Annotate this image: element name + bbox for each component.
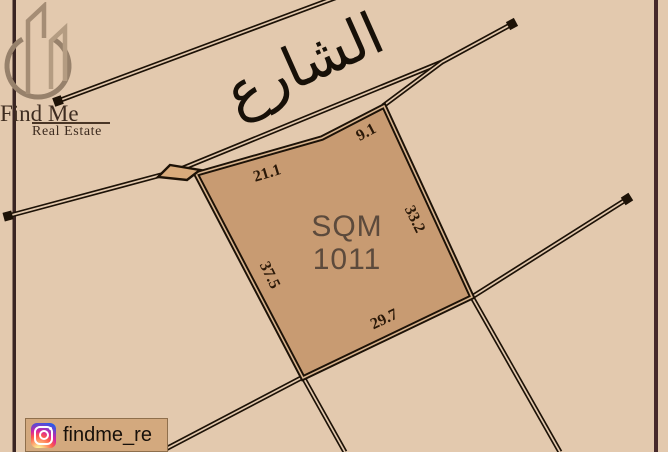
instagram-icon-lens [39, 430, 49, 440]
street-name-label: الشارع [214, 0, 393, 129]
area-unit-label: SQM [311, 210, 382, 243]
instagram-icon-dot [49, 427, 52, 430]
brand-tagline: Real Estate [32, 124, 102, 140]
listing-image: الشارع SQM 1011 21.1 9.1 33.2 37.5 29.7 … [0, 0, 668, 452]
instagram-icon [31, 423, 56, 448]
brand-logo: Find Me Real Estate [0, 0, 130, 145]
junction-parcel [158, 165, 200, 180]
area-value-label: 1011 [313, 243, 382, 276]
frame-right-border [654, 0, 658, 452]
instagram-badge[interactable]: findme_re [25, 418, 168, 452]
instagram-handle: findme_re [63, 424, 152, 447]
building-logo-icon [2, 2, 80, 102]
